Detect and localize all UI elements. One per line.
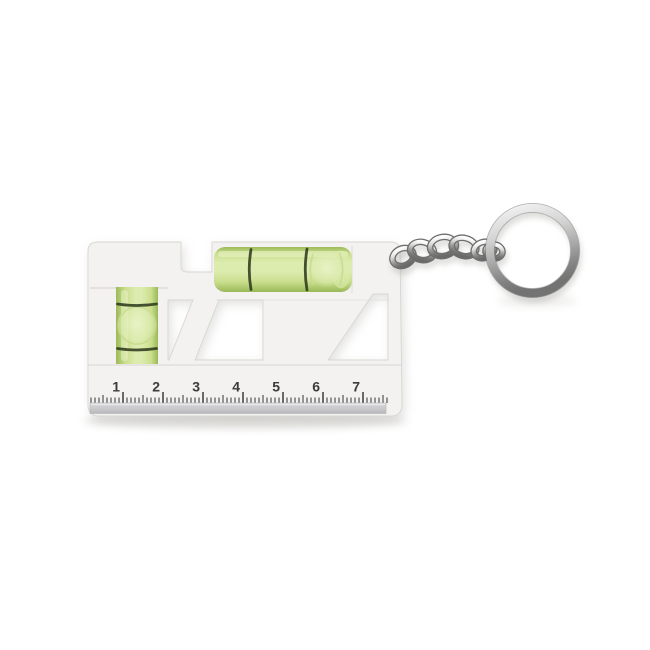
vertical-vial [116,287,158,364]
spirit-level-keychain-image: 1234567 [0,0,650,650]
ruler-number: 3 [192,379,200,395]
ruler-strip-highlight [91,404,385,406]
ruler-number: 4 [232,379,240,395]
vertical-vial-bubble [117,306,157,346]
ruler-number: 5 [272,379,280,395]
ruler-number: 1 [112,379,120,395]
keychain [389,204,579,298]
vertical-vial-marking-top [118,304,157,306]
product-photo: 1234567 [0,0,650,650]
ruler-number: 7 [352,379,360,395]
ruler-number: 2 [152,379,160,395]
vertical-vial-marking-bottom [118,349,157,351]
ruler-number: 6 [312,379,320,395]
horizontal-vial-bubble [310,252,344,287]
horizontal-vial [214,247,352,292]
